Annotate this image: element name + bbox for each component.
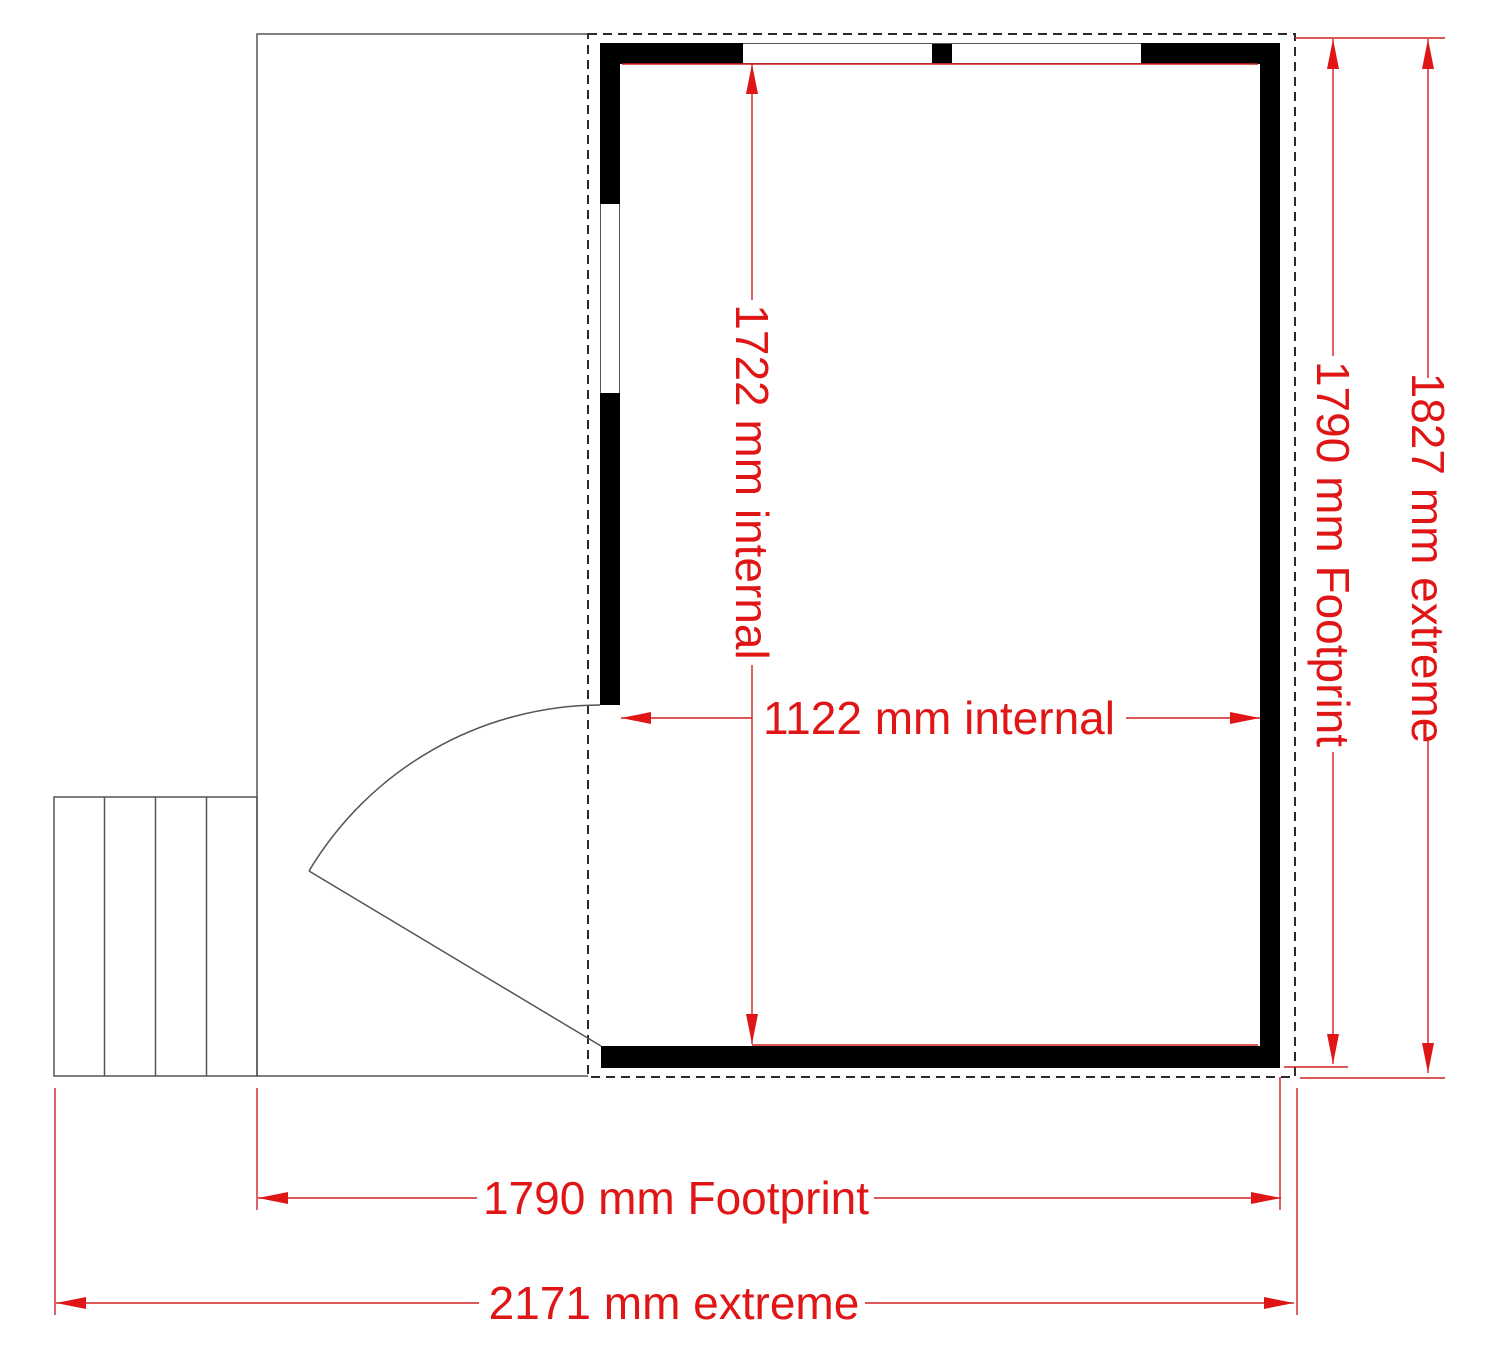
dim-internal-width: 1122 mm internal: [621, 692, 1260, 744]
steps: [54, 797, 257, 1076]
dimensions: 1722 mm internal 1122 mm internal 1790 m…: [55, 38, 1454, 1329]
dim-internal-height: 1722 mm internal: [622, 64, 1258, 1045]
dim-extreme-height-label: 1827 mm extreme: [1402, 373, 1454, 744]
bottom-wall: [601, 1046, 1280, 1068]
left-wall-lower-segment: [600, 393, 620, 705]
floor-plan-drawing: 1722 mm internal 1122 mm internal 1790 m…: [0, 0, 1500, 1367]
dim-internal-width-arrow-left: [621, 712, 651, 724]
dim-extreme-width-arrow-right: [1264, 1297, 1294, 1309]
dim-extreme-height-arrow-up: [1422, 39, 1434, 69]
door-swing-arc: [309, 705, 600, 871]
dim-extreme-width-label: 2171 mm extreme: [489, 1277, 860, 1329]
dim-internal-width-arrow-right: [1230, 712, 1260, 724]
dim-footprint-width-arrow-right: [1251, 1192, 1281, 1204]
door: [309, 705, 601, 1046]
dim-internal-height-arrow-down: [746, 1014, 758, 1044]
dim-extreme-height-arrow-down: [1422, 1043, 1434, 1073]
footprint-dashed-rect: [588, 34, 1295, 1077]
dim-internal-height-label: 1722 mm internal: [726, 304, 778, 659]
footprint-dashed-outline: [588, 34, 1295, 1077]
door-leaf: [309, 871, 601, 1046]
dim-footprint-height-label: 1790 mm Footprint: [1307, 361, 1359, 747]
top-wall-left-segment: [600, 43, 743, 64]
dim-footprint-height-arrow-down: [1327, 1034, 1339, 1064]
deck-outline: [257, 34, 588, 1076]
walls: [600, 43, 1280, 1068]
dim-footprint-height-arrow-up: [1327, 39, 1339, 69]
windows: [601, 44, 1142, 394]
dim-extreme-width-arrow-left: [56, 1297, 86, 1309]
dim-footprint-width-arrow-left: [258, 1192, 288, 1204]
floor-plan-canvas: 1722 mm internal 1122 mm internal 1790 m…: [0, 0, 1500, 1367]
dim-internal-width-label: 1122 mm internal: [763, 692, 1115, 744]
deck-outline-path: [257, 34, 588, 1076]
dim-footprint-width-label: 1790 mm Footprint: [483, 1172, 869, 1224]
dim-internal-height-arrow-up: [746, 64, 758, 94]
top-wall-right-segment: [1141, 43, 1280, 64]
left-wall-upper-segment: [600, 43, 620, 204]
top-wall-mullion: [932, 43, 952, 64]
right-wall: [1260, 43, 1280, 1068]
dim-footprint-width: 1790 mm Footprint: [257, 1088, 1281, 1224]
